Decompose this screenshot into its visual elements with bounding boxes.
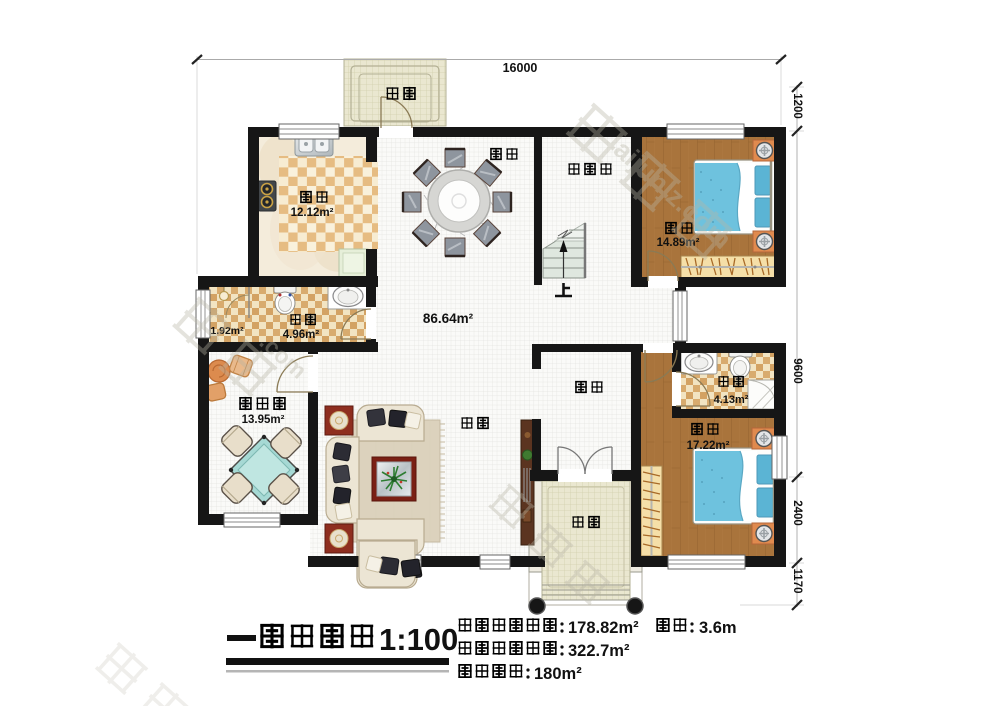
svg-text:178.82m²: 178.82m² <box>568 619 639 637</box>
svg-text:180m²: 180m² <box>534 665 582 683</box>
svg-text:1200: 1200 <box>791 93 803 119</box>
svg-text:2400: 2400 <box>791 500 803 526</box>
svg-text:9600: 9600 <box>791 358 803 384</box>
svg-text:1170: 1170 <box>791 569 803 594</box>
svg-text:16000: 16000 <box>503 61 538 75</box>
svg-text:3.6m: 3.6m <box>699 619 737 637</box>
svg-text:4.96m²: 4.96m² <box>283 329 320 341</box>
svg-text:322.7m²: 322.7m² <box>568 642 630 660</box>
svg-text:86.64m²: 86.64m² <box>423 311 474 326</box>
svg-text:13.95m²: 13.95m² <box>242 414 285 426</box>
svg-text:1:100: 1:100 <box>379 622 458 657</box>
svg-text:17.22m²: 17.22m² <box>687 440 730 452</box>
svg-text:12.12m²: 12.12m² <box>291 207 334 219</box>
svg-text:4.13m²: 4.13m² <box>714 394 749 406</box>
